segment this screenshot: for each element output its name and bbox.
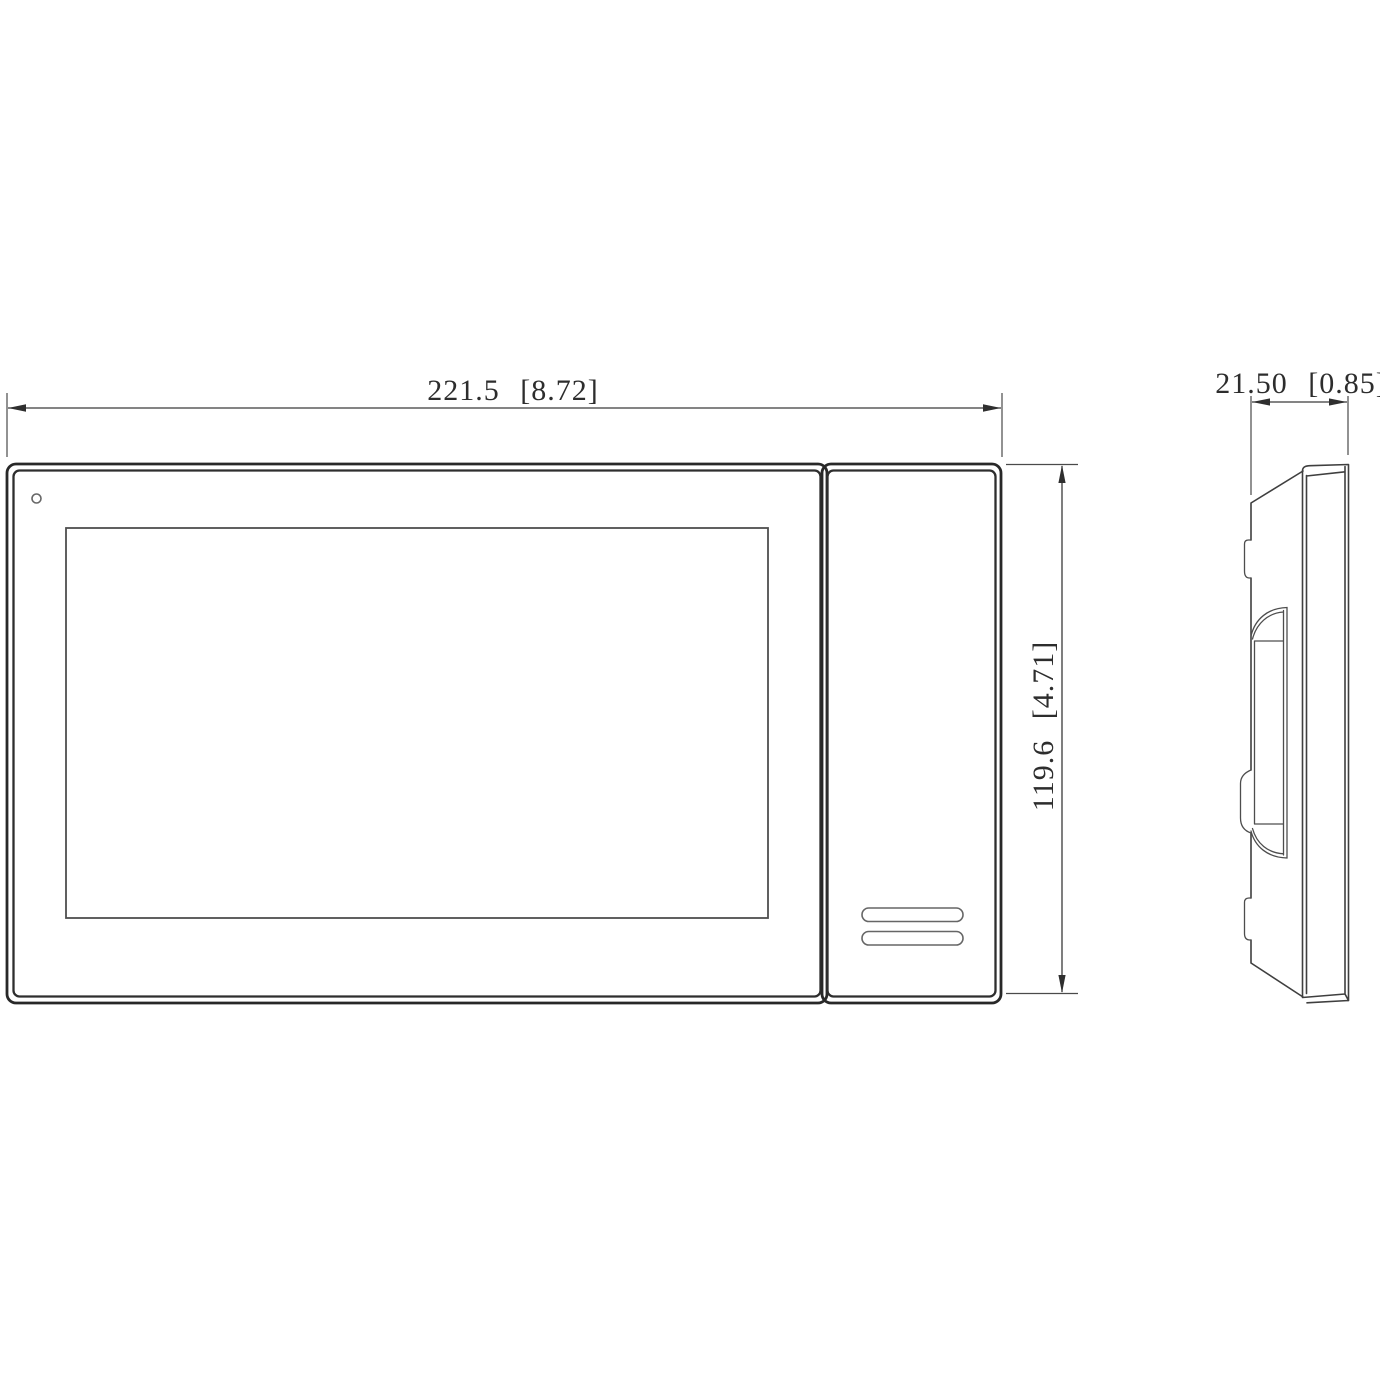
speaker-slot-1 — [862, 908, 963, 922]
indicator-hole — [32, 494, 41, 503]
front-height-dimension: 119.6 [4.71] — [1006, 465, 1078, 994]
depth-extension-lines — [1251, 396, 1348, 495]
width-arrow-left — [8, 404, 26, 412]
front-view — [7, 464, 1001, 1003]
front-width-dimension: 221.5 [8.72] — [7, 374, 1002, 457]
front-width-label: 221.5 [8.72] — [427, 374, 598, 407]
mount-tab-top — [1245, 540, 1252, 578]
side-depth-dimension: 21.50 [0.85] — [1215, 367, 1380, 495]
height-arrow-bottom — [1058, 975, 1065, 993]
speaker-slot-2 — [862, 932, 963, 946]
screen — [66, 528, 768, 918]
mount-tab-bottom — [1245, 898, 1252, 940]
handle-recess — [1251, 608, 1287, 859]
front-height-label: 119.6 [4.71] — [1027, 641, 1060, 811]
height-arrow-top — [1058, 465, 1065, 483]
mount-tab-middle — [1241, 770, 1252, 833]
side-back-housing — [1251, 471, 1303, 997]
dimension-drawing-canvas: 221.5 [8.72] 119.6 [4.71] — [0, 0, 1380, 1380]
width-arrow-right — [983, 404, 1001, 412]
right-panel-inner — [828, 471, 996, 997]
side-view — [1241, 465, 1349, 1003]
side-depth-label: 21.50 [0.85] — [1215, 367, 1380, 400]
side-front-panel — [1303, 465, 1349, 1003]
front-body-outer — [7, 464, 827, 1003]
